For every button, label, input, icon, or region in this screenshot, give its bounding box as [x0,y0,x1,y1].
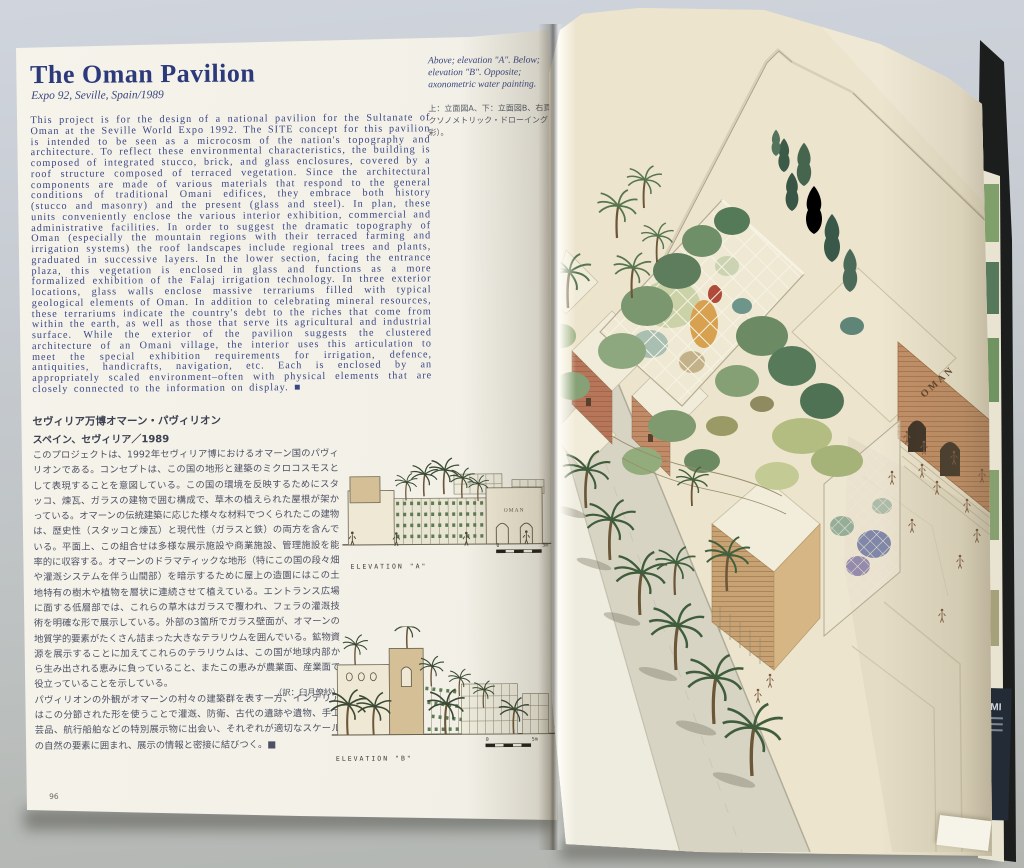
article-title: The Oman Pavilion [30,58,255,90]
japanese-paragraph-1: このプロジェクトは、1992年セヴィリア博におけるオマーン国のパヴィリオンである… [33,446,341,693]
article-title-japanese: セヴィリア万博オマーン・パヴィリオン [32,413,221,429]
elevation-a-left-block [348,477,394,545]
page-number: 96 [49,792,59,801]
article-body-english: This project is for the design of a nati… [30,113,432,395]
article-subtitle-japanese: スペイン、セヴィリア／1989 [33,430,170,446]
right-page-edge-shade [880,6,996,856]
article-subtitle: Expo 92, Seville, Spain/1989 [31,89,164,102]
japanese-paragraph-2: パヴィリオンの外観がオマーンの村々の建築群を表す一方、インテリアはこの分節された… [34,691,340,754]
elevation-b-tower [389,648,424,734]
article-body-japanese: このプロジェクトは、1992年セヴィリア博におけるオマーン国のパヴィリオンである… [33,446,341,754]
book-gutter-shadow [538,24,564,850]
elevation-b-label: ELEVATION "B" [336,754,413,763]
elevation-a-label: ELEVATION "A" [351,562,428,571]
arched-window [401,667,411,687]
page-curl-highlight [552,6,702,854]
translator-credit: （訳：臼月僚紗） [230,686,340,699]
photo-of-open-book: ZUMI The Oman Pavilion Expo 92, Seville,… [0,0,1024,868]
page-corner-dogear [936,815,991,851]
